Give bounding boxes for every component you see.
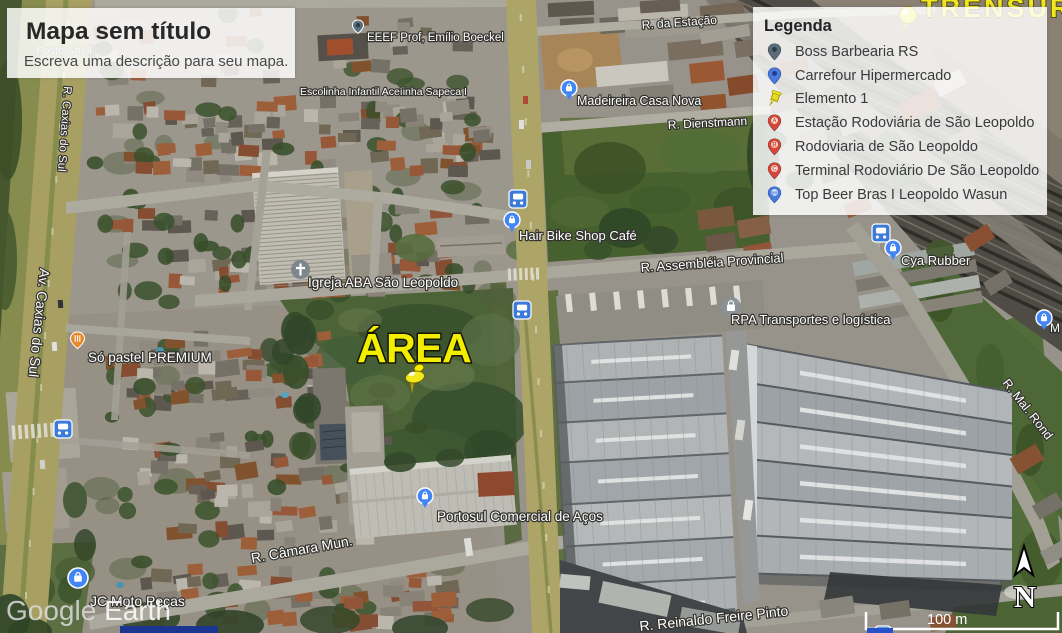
svg-text:Cya Rubber: Cya Rubber [901,253,971,268]
svg-text:Madeireira Casa Nova: Madeireira Casa Nova [577,94,701,108]
svg-text:B: B [772,142,777,149]
svg-text:EEEF Prof, Emílio Boeckel: EEEF Prof, Emílio Boeckel [367,32,504,44]
svg-text:RPA Transportes e logística: RPA Transportes e logística [731,312,891,327]
svg-text:Escolinha Infantil Aceíinha Sa: Escolinha Infantil Aceíinha Sapeca I [300,86,467,98]
svg-text:Só pastel PREMIUM: Só pastel PREMIUM [88,350,212,365]
svg-text:BR: BR [771,190,777,195]
svg-text:A: A [772,118,777,125]
svg-text:N: N [1014,579,1036,614]
svg-text:Google Earth: Google Earth [6,595,171,626]
svg-text:ÁREA: ÁREA [357,325,471,371]
svg-text:100 m: 100 m [927,612,967,628]
svg-text:C: C [772,166,777,173]
svg-text:Igreja ABA São Leopoldo: Igreja ABA São Leopoldo [308,275,458,290]
svg-text:Hair Bike Shop Café: Hair Bike Shop Café [519,228,637,243]
svg-text:M: M [1050,321,1060,335]
svg-text:Portosul Comercial de Aços: Portosul Comercial de Aços [437,509,603,524]
